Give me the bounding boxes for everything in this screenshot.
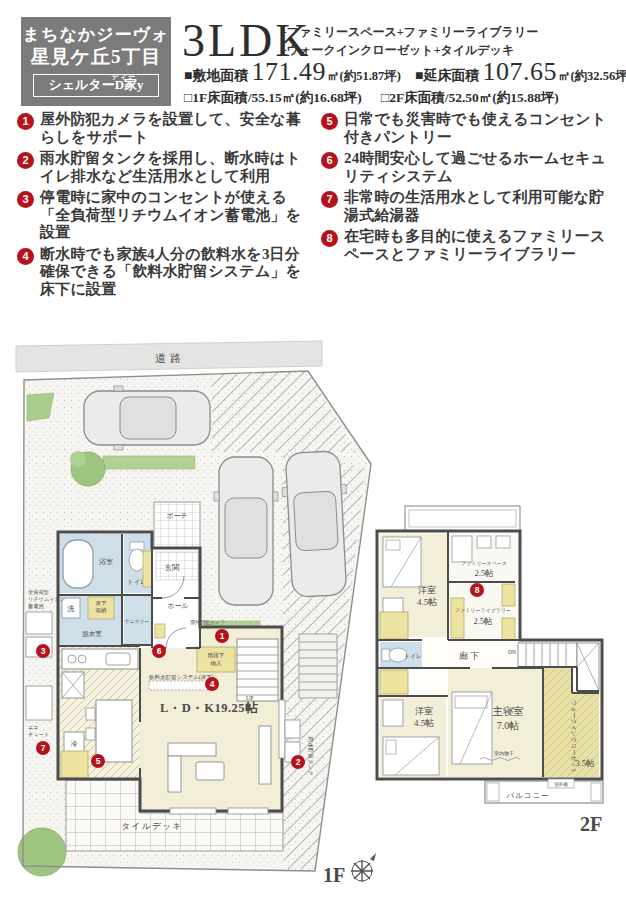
floor-storage-label1: 床下 bbox=[96, 600, 108, 606]
brand-box: まちなかジーヴォ 星見ケ丘5丁目 ディー シェルターD家y bbox=[21, 17, 171, 106]
flyer-page: まちなかジーヴォ 星見ケ丘5丁目 ディー シェルターD家y 3LDK +ファミリ… bbox=[0, 0, 626, 900]
marker-5: 5 bbox=[91, 754, 105, 768]
sanitary: サニタリー bbox=[124, 595, 151, 645]
feature-column-right: 5 日常でも災害時でも使えるコンセント付きパントリー 6 24時間安心して過ごせ… bbox=[321, 111, 613, 302]
water-system-label: 飲料水貯留システム(床下) bbox=[149, 674, 214, 681]
pantry bbox=[61, 751, 88, 778]
feature-text: 非常時の生活用水として利用可能な貯湯式給湯器 bbox=[344, 189, 613, 224]
feature-text: 日常でも災害時でも使えるコンセント付きパントリー bbox=[344, 111, 613, 146]
balcony: 室外機 バルコニー bbox=[485, 779, 603, 803]
floor-plans: 道路 タイルデッキ bbox=[0, 330, 626, 900]
svg-text:2: 2 bbox=[296, 757, 301, 767]
floor2-area: □2F床面積/52.50㎡(約15.88坪) bbox=[381, 90, 559, 105]
family-space-size: 2.5帖 bbox=[474, 568, 494, 578]
sanitary-label: サニタリー bbox=[125, 619, 150, 624]
ecocute-label2: キュート bbox=[28, 731, 49, 737]
plan-2f: 洋室 4.5帖 ファミリースペース 2.5帖 ファミリーライブラリー 2.5帖 bbox=[377, 506, 603, 835]
feature-number-badge: 4 bbox=[17, 248, 34, 265]
stairs-dn-label: DN bbox=[508, 649, 516, 655]
master-size: 7.0帖 bbox=[497, 720, 520, 731]
feature-item-1: 1 屋外防犯カメラを設置して、安全な暮らしをサポート bbox=[17, 111, 309, 146]
toilet-2f: トイレ bbox=[380, 642, 422, 668]
road-label: 道路 bbox=[155, 352, 185, 364]
bush-corner bbox=[18, 828, 66, 876]
floor1-name: 1F bbox=[323, 864, 345, 886]
car-right-1 bbox=[214, 457, 278, 605]
battery-label1: 全負荷型 bbox=[28, 589, 50, 595]
svg-text:3: 3 bbox=[41, 646, 46, 656]
hall-label: ホール bbox=[167, 602, 188, 610]
stairs-1f: UP bbox=[237, 639, 278, 701]
floor2-name: 2F bbox=[580, 813, 602, 835]
site-plan-1f: 道路 タイルデッキ bbox=[16, 341, 376, 886]
bathroom: 浴室 bbox=[59, 534, 122, 593]
total-area-value: 107.65 bbox=[482, 57, 557, 87]
total-area-label: ■延床面積 bbox=[415, 67, 479, 85]
feature-number-badge: 1 bbox=[17, 113, 34, 130]
svg-text:1: 1 bbox=[220, 631, 225, 641]
marker-1: 1 bbox=[215, 629, 229, 643]
feature-text: 停電時に家中のコンセントが使える「全負荷型リチウムイオン蓄電池」を設置 bbox=[40, 189, 309, 242]
ac-unit-label: 室外機 bbox=[554, 781, 568, 787]
porch-label: ポーチ bbox=[166, 512, 187, 520]
dressing-room: 洗 床下 収納 脱衣室 bbox=[59, 595, 122, 645]
feature-text: 断水時でも家族4人分の飲料水を3日分確保できる「飲料水貯留システム」を床下に設置 bbox=[40, 246, 309, 299]
family-space-label: ファミリースペース bbox=[461, 561, 507, 566]
feature-number-badge: 5 bbox=[321, 113, 338, 130]
marker-4: 4 bbox=[205, 677, 219, 691]
feature-item-7: 7 非常時の生活用水として利用可能な貯湯式給湯器 bbox=[321, 189, 613, 224]
bedroom1-size: 4.5帖 bbox=[417, 597, 437, 607]
feature-item-5: 5 日常でも災害時でも使えるコンセント付きパントリー bbox=[321, 111, 613, 146]
svg-text:4: 4 bbox=[210, 679, 215, 689]
floor1-area: □1F床面積/55.15㎡(約16.68坪) bbox=[184, 90, 362, 105]
water-storage-system: 飲料水貯留システム(床下) bbox=[149, 674, 214, 690]
marker-3: 3 bbox=[36, 644, 50, 658]
porch: ポーチ bbox=[154, 502, 200, 549]
feature-item-3: 3 停電時に家中のコンセントが使える「全負荷型リチウムイオン蓄電池」を設置 bbox=[17, 189, 309, 242]
brand-series-ruby: ディー bbox=[112, 74, 136, 81]
plan-extras-line1: +ファミリースペース+ファミリーライブラリー bbox=[280, 23, 538, 41]
feature-item-8: 8 在宅時も多目的に使えるファミリースペースとファミリーライブラリー bbox=[321, 228, 613, 263]
feature-item-4: 4 断水時でも家族4人分の飲料水を3日分確保できる「飲料水貯留システム」を床下に… bbox=[17, 246, 309, 299]
family-space: ファミリースペース 2.5帖 bbox=[449, 534, 515, 582]
balcony-label: バルコニー bbox=[505, 791, 549, 800]
total-area-unit: ㎡(約32.56坪) bbox=[558, 68, 626, 85]
entrance-label: 玄関 bbox=[165, 563, 181, 572]
feature-number-badge: 3 bbox=[17, 191, 34, 208]
plan-extras: +ファミリースペース+ファミリーライブラリー +ウォークインクローゼット+タイル… bbox=[280, 23, 538, 59]
battery-label2: リチウムイオン bbox=[28, 596, 65, 603]
ecocute-label1: エコ bbox=[28, 724, 39, 730]
bedroom2: 洋室 4.5帖 bbox=[380, 696, 446, 777]
feature-text: 24時間安心して過ごせるホームセキュリティシステム bbox=[344, 150, 613, 185]
marker-7: 7 bbox=[36, 741, 50, 755]
brand-series: ディー シェルターD家y bbox=[33, 74, 159, 97]
brand-name: まちなかジーヴォ bbox=[21, 25, 171, 45]
svg-text:6: 6 bbox=[157, 646, 162, 656]
bedroom2-size: 4.5帖 bbox=[414, 718, 434, 728]
battery-label3: 蓄電池 bbox=[28, 603, 44, 610]
bedroom1-label: 洋室 bbox=[418, 585, 436, 595]
site-area-value: 171.49 bbox=[251, 57, 326, 87]
svg-text:7: 7 bbox=[41, 743, 46, 753]
area-line-main: ■敷地面積 171.49 ㎡(約51.87坪) ■延床面積 107.65 ㎡(約… bbox=[184, 57, 626, 87]
feature-item-2: 2 雨水貯留タンクを採用し、断水時はトイレ排水など生活用水として利用 bbox=[17, 150, 309, 185]
bedroom2-label: 洋室 bbox=[415, 706, 433, 716]
outdoor-steps bbox=[299, 634, 337, 698]
feature-text: 在宅時も多目的に使えるファミリースペースとファミリーライブラリー bbox=[344, 228, 613, 263]
wic-size: 3.5帖 bbox=[575, 758, 595, 768]
family-library-label: ファミリーライブラリー bbox=[455, 607, 511, 613]
marker-8: 8 bbox=[470, 583, 484, 597]
under-stairs-label2: 物入 bbox=[211, 660, 223, 667]
master-bedroom: 主寝室 7.0帖 室内物干 bbox=[448, 668, 543, 777]
feature-list: 1 屋外防犯カメラを設置して、安全な暮らしをサポート 2 雨水貯留タンクを採用し… bbox=[17, 111, 613, 302]
feature-number-badge: 6 bbox=[321, 152, 338, 169]
feature-number-badge: 7 bbox=[321, 191, 338, 208]
feature-text: 屋外防犯カメラを設置して、安全な暮らしをサポート bbox=[40, 111, 309, 146]
indoor-drying-label: 室内物干 bbox=[494, 750, 514, 757]
feature-number-badge: 8 bbox=[321, 230, 338, 247]
feature-column-left: 1 屋外防犯カメラを設置して、安全な暮らしをサポート 2 雨水貯留タンクを採用し… bbox=[17, 111, 309, 302]
svg-text:5: 5 bbox=[96, 756, 101, 766]
bath-label: 浴室 bbox=[99, 558, 113, 566]
rain-tank-label: 雨水貯留タンク bbox=[307, 737, 314, 776]
site-area-unit: ㎡(約51.87坪) bbox=[327, 68, 401, 85]
brand-location: 星見ケ丘5丁目 bbox=[21, 45, 171, 68]
feature-number-badge: 2 bbox=[17, 152, 34, 169]
camera-label: 屋外防犯カメラ bbox=[190, 619, 225, 626]
fridge-label: 冷 bbox=[71, 740, 78, 748]
marker-2: 2 bbox=[291, 755, 305, 769]
hallway-label: 廊下 bbox=[459, 651, 481, 661]
hedge-front bbox=[103, 456, 195, 469]
master-label: 主寝室 bbox=[492, 705, 524, 717]
road: 道路 bbox=[16, 341, 322, 372]
marker-6: 6 bbox=[152, 644, 166, 658]
car-top bbox=[84, 386, 210, 450]
svg-text:8: 8 bbox=[475, 585, 480, 595]
site-area-label: ■敷地面積 bbox=[184, 67, 248, 85]
toilet2-label: トイレ bbox=[404, 653, 422, 659]
washer-label: 洗 bbox=[67, 605, 75, 613]
dressing-label: 脱衣室 bbox=[82, 630, 102, 637]
closet-lower bbox=[380, 670, 408, 694]
feature-item-6: 6 24時間安心して過ごせるホームセキュリティシステム bbox=[321, 150, 613, 185]
under-stairs-label1: 階段下 bbox=[208, 652, 225, 659]
area-line-floors: □1F床面積/55.15㎡(約16.68坪) □2F床面積/52.50㎡(約15… bbox=[184, 89, 559, 107]
feature-text: 雨水貯留タンクを採用し、断水時はトイレ排水など生活用水として利用 bbox=[40, 150, 309, 185]
tile-deck-label: タイルデッキ bbox=[121, 821, 182, 831]
closet-upper bbox=[380, 612, 408, 639]
under-stairs-storage: 階段下 物入 bbox=[197, 647, 235, 672]
compass-icon bbox=[351, 853, 376, 882]
tree-highlight bbox=[70, 451, 86, 467]
floor-storage-label2: 収納 bbox=[96, 607, 107, 613]
family-library-size: 2.5帖 bbox=[473, 616, 493, 626]
ldk-label: L・D・K19.25帖 bbox=[160, 701, 258, 715]
